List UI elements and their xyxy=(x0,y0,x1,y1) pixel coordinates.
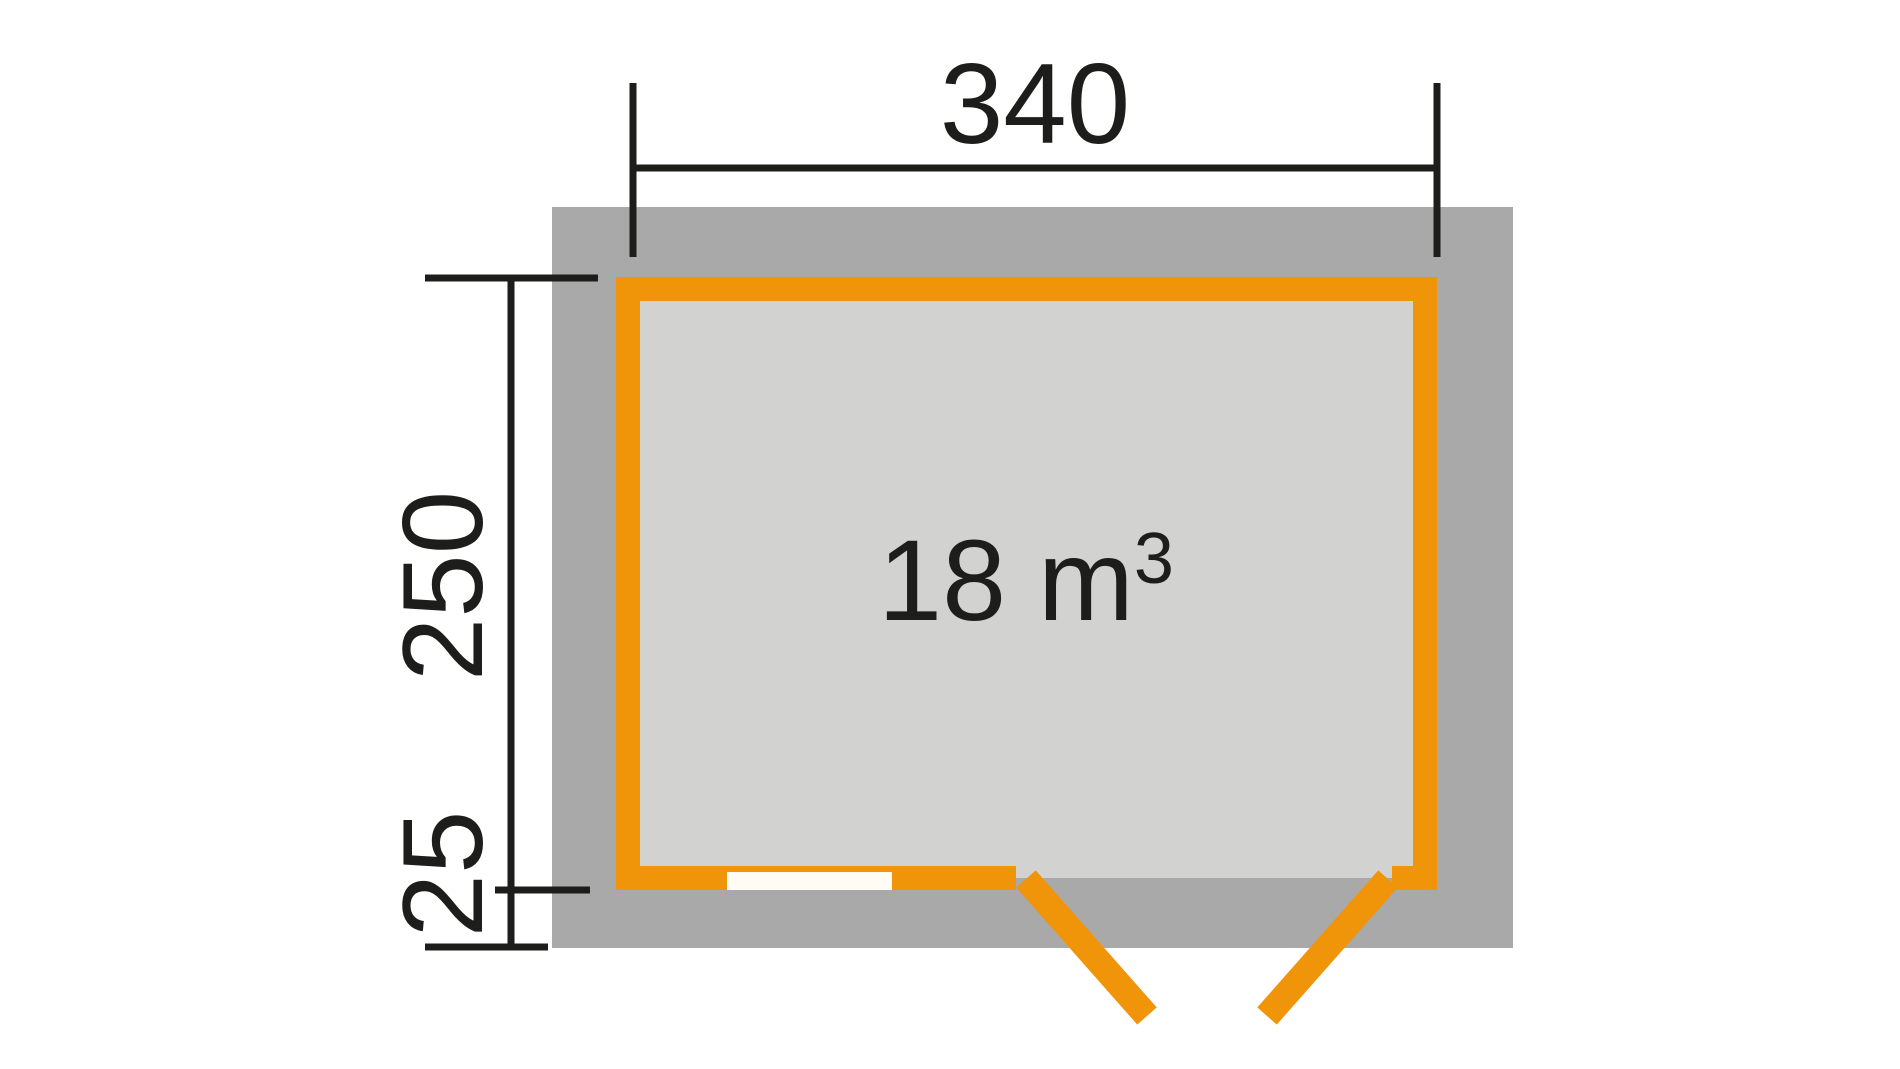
width-dimension-label: 340 xyxy=(940,41,1130,168)
volume-label: 18 m3 xyxy=(878,517,1174,645)
shed-floor-plan: 340 250 25 18 m3 xyxy=(0,0,1900,1069)
door-opening-threshold xyxy=(1016,878,1392,890)
door-opening-floor xyxy=(1016,866,1392,878)
volume-exponent: 3 xyxy=(1134,519,1174,599)
window xyxy=(727,872,892,890)
overhang-dimension-label: 25 xyxy=(380,811,507,938)
floor-plan-canvas: 340 250 25 18 m3 xyxy=(0,0,1900,1069)
depth-dimension-label: 250 xyxy=(380,491,507,681)
volume-value: 18 m xyxy=(878,517,1134,645)
